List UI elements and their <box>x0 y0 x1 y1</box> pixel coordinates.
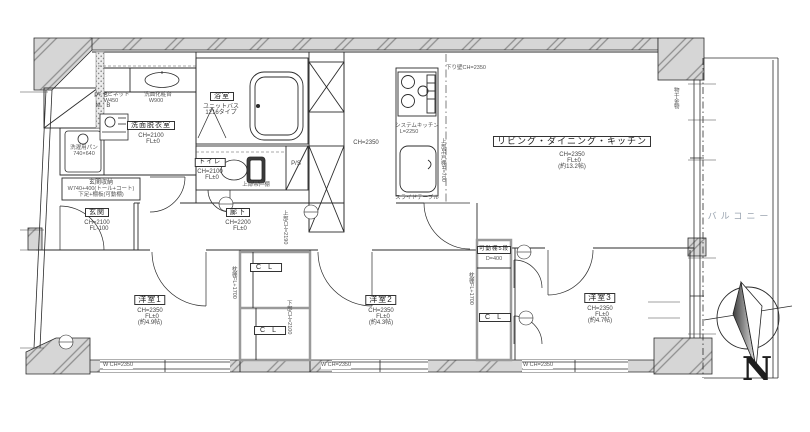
pillow-shelf-note-2: 枕棚FL+1700 <box>467 272 473 305</box>
toilet <box>221 157 265 183</box>
balcony-label: バルコニー <box>708 212 773 221</box>
room-label-toilet: トイレ <box>195 158 226 167</box>
cabinet-width: W450 <box>104 99 118 105</box>
left-wall-window <box>34 90 52 348</box>
room-label-hall: 廊下 <box>226 208 250 217</box>
room-label-entry: 玄関 <box>85 208 109 217</box>
room-label-ldk: リビング・ダイニング・キッチン <box>493 136 651 147</box>
bed1-size: (約4.9帖) <box>138 320 162 326</box>
room-label-washroom: 洗面脱衣室 <box>127 121 175 130</box>
bath-model: 1216タイプ <box>205 110 236 116</box>
compass-north-label: N <box>742 352 772 387</box>
window-note-3: W CH=2350 <box>523 363 553 369</box>
ps2-label: P/S <box>291 161 301 167</box>
movable-shelf-depth: D=400 <box>486 257 502 263</box>
ldk-size: (約13.2帖) <box>558 164 586 170</box>
kitchen-hall-ch: CH=2350 <box>353 140 379 146</box>
washroom-fl: FL±0 <box>146 139 160 145</box>
floor-plan-page: リビング・ダイニング・キッチン CH=2350 FL±0 (約13.2帖) 洋室… <box>0 0 810 432</box>
closet-label-1: CL <box>250 263 282 272</box>
bed3-size: (約4.7帖) <box>588 318 612 324</box>
laundry-hardware-note: 物干金物 <box>672 87 678 109</box>
movable-shelf-label: 可動棚5段 <box>477 246 511 254</box>
window-note-2: W CH=2350 <box>321 363 351 369</box>
closet-label-2: CL <box>254 326 286 335</box>
fitting-tags <box>59 197 533 349</box>
window-note-1: W CH=2350 <box>103 363 133 369</box>
toilet-fl: FL±0 <box>205 175 219 181</box>
closet-label-3: CL <box>479 313 511 322</box>
drop-wall-note: 下り壁CH=2350 <box>446 66 486 72</box>
kitchen-length: L=2250 <box>400 130 419 136</box>
vanity-width: W900 <box>149 99 163 105</box>
lower-ch-note: 下部CH=2100 <box>285 300 291 334</box>
bed2-size: (約4.3帖) <box>369 320 393 326</box>
gas-meter <box>100 114 128 140</box>
kitchen-hood-note: 上部吊戸棚H=700 <box>439 138 445 182</box>
pillow-shelf-note-1: 枕棚FL+1700 <box>230 266 236 299</box>
entry-storage-spec2: 下足+棚板(可動棚) <box>78 193 123 199</box>
hall-upper-note: 上部CH=2190 <box>281 210 287 244</box>
washer-pan-size: 740×640 <box>73 152 95 158</box>
bathtub <box>250 72 303 140</box>
room-label-bath: 浴室 <box>210 92 234 101</box>
right-window-wall <box>690 80 704 338</box>
room-label-bed1: 洋室1 <box>134 295 165 305</box>
vanity-basin <box>145 71 179 88</box>
toilet-upper-cabinet: 上部吊戸棚 <box>242 183 270 189</box>
entry-fl: FL-100 <box>89 226 108 232</box>
hall-fl: FL±0 <box>233 226 247 232</box>
room-label-bed3: 洋室3 <box>584 293 615 303</box>
slide-table-label: スライドテーブル <box>395 196 439 202</box>
room-label-bed2: 洋室2 <box>365 295 396 305</box>
